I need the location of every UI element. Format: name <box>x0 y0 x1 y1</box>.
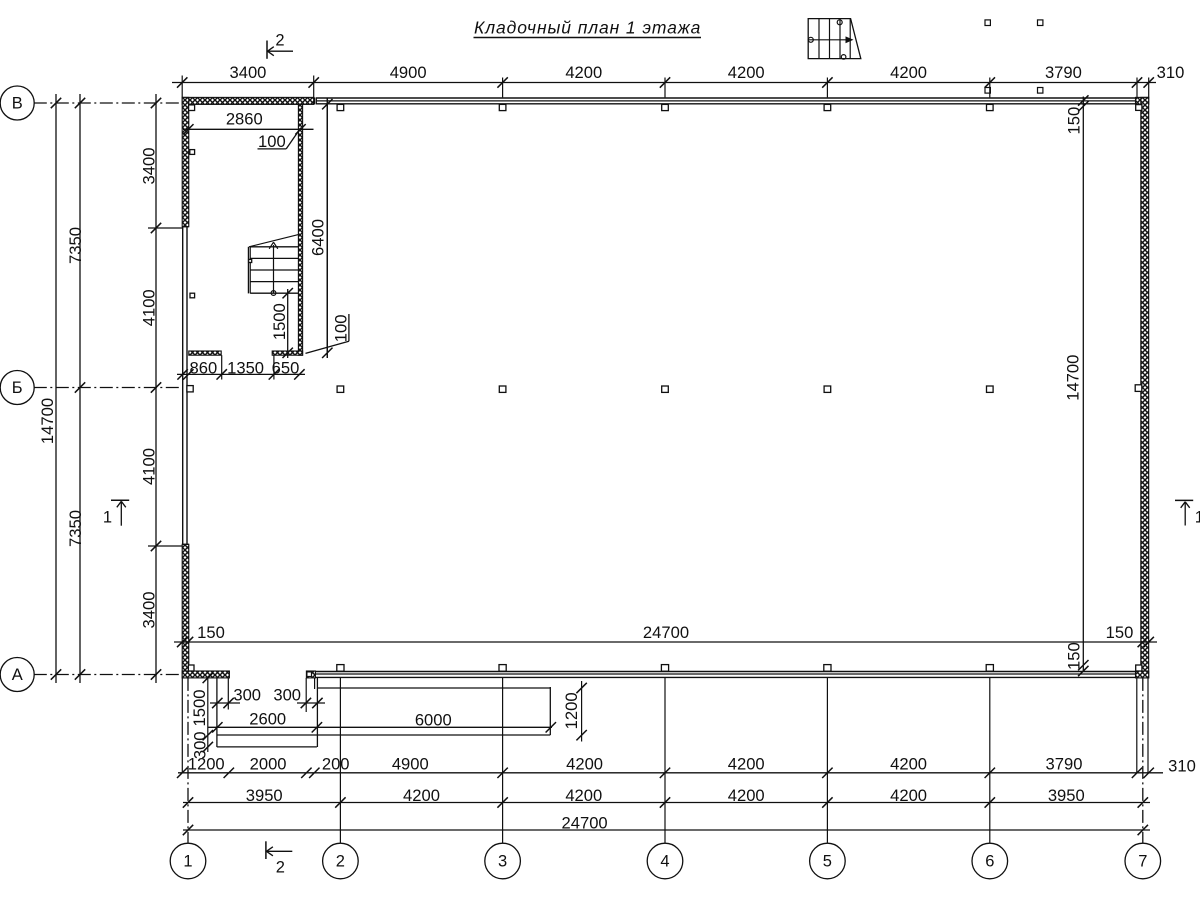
svg-text:5: 5 <box>823 853 832 871</box>
svg-text:3950: 3950 <box>246 786 283 805</box>
svg-text:2600: 2600 <box>249 710 286 729</box>
svg-text:4200: 4200 <box>403 786 440 805</box>
svg-text:2000: 2000 <box>250 755 287 774</box>
svg-text:4900: 4900 <box>390 63 427 82</box>
svg-text:150: 150 <box>1106 623 1134 642</box>
svg-text:7350: 7350 <box>66 510 85 547</box>
svg-text:3950: 3950 <box>1048 786 1085 805</box>
svg-text:1200: 1200 <box>562 692 581 729</box>
svg-text:1500: 1500 <box>190 690 209 727</box>
svg-text:14700: 14700 <box>38 398 57 444</box>
svg-text:3790: 3790 <box>1046 755 1083 774</box>
svg-text:4200: 4200 <box>890 786 927 805</box>
svg-text:14700: 14700 <box>1064 355 1083 401</box>
svg-text:650: 650 <box>272 358 300 377</box>
svg-text:3400: 3400 <box>140 592 159 629</box>
svg-text:3400: 3400 <box>140 148 159 185</box>
svg-text:6: 6 <box>985 853 994 871</box>
svg-text:4: 4 <box>660 853 669 871</box>
svg-text:300: 300 <box>233 686 261 705</box>
svg-text:24700: 24700 <box>643 623 689 642</box>
svg-text:Б: Б <box>12 379 23 397</box>
svg-text:1: 1 <box>103 509 112 527</box>
svg-text:310: 310 <box>1157 63 1185 82</box>
svg-text:4200: 4200 <box>728 755 765 774</box>
svg-text:150: 150 <box>197 623 225 642</box>
svg-text:4200: 4200 <box>890 63 927 82</box>
svg-text:150: 150 <box>1064 107 1083 135</box>
svg-text:1500: 1500 <box>270 303 289 340</box>
svg-text:4200: 4200 <box>565 786 602 805</box>
svg-text:А: А <box>12 666 23 684</box>
svg-text:2: 2 <box>336 853 345 871</box>
svg-text:6400: 6400 <box>308 219 327 256</box>
svg-text:6000: 6000 <box>415 711 452 730</box>
svg-text:100: 100 <box>332 315 351 343</box>
svg-text:860: 860 <box>190 358 218 377</box>
svg-text:7350: 7350 <box>66 227 85 264</box>
svg-text:24700: 24700 <box>562 814 608 833</box>
svg-text:7: 7 <box>1138 853 1147 871</box>
svg-text:4900: 4900 <box>392 755 429 774</box>
svg-text:310: 310 <box>1168 757 1196 776</box>
svg-text:4200: 4200 <box>728 63 765 82</box>
svg-text:2: 2 <box>275 32 284 50</box>
svg-text:В: В <box>12 95 23 113</box>
svg-text:1: 1 <box>183 853 192 871</box>
svg-text:1200: 1200 <box>188 755 225 774</box>
svg-text:1: 1 <box>1195 509 1200 527</box>
svg-text:2860: 2860 <box>226 110 263 129</box>
svg-text:4200: 4200 <box>728 786 765 805</box>
svg-text:1350: 1350 <box>227 358 264 377</box>
svg-text:4200: 4200 <box>565 63 602 82</box>
svg-text:200: 200 <box>322 755 350 774</box>
svg-text:4200: 4200 <box>890 755 927 774</box>
svg-text:4200: 4200 <box>566 755 603 774</box>
svg-text:4100: 4100 <box>140 448 159 485</box>
svg-text:300: 300 <box>273 686 301 705</box>
svg-text:3400: 3400 <box>229 63 266 82</box>
svg-text:150: 150 <box>1064 642 1083 670</box>
svg-text:3: 3 <box>498 853 507 871</box>
svg-text:2: 2 <box>276 858 285 876</box>
svg-text:4100: 4100 <box>140 289 159 326</box>
svg-text:Кладочный план 1 этажа: Кладочный план 1 этажа <box>474 18 701 38</box>
svg-text:3790: 3790 <box>1045 63 1082 82</box>
